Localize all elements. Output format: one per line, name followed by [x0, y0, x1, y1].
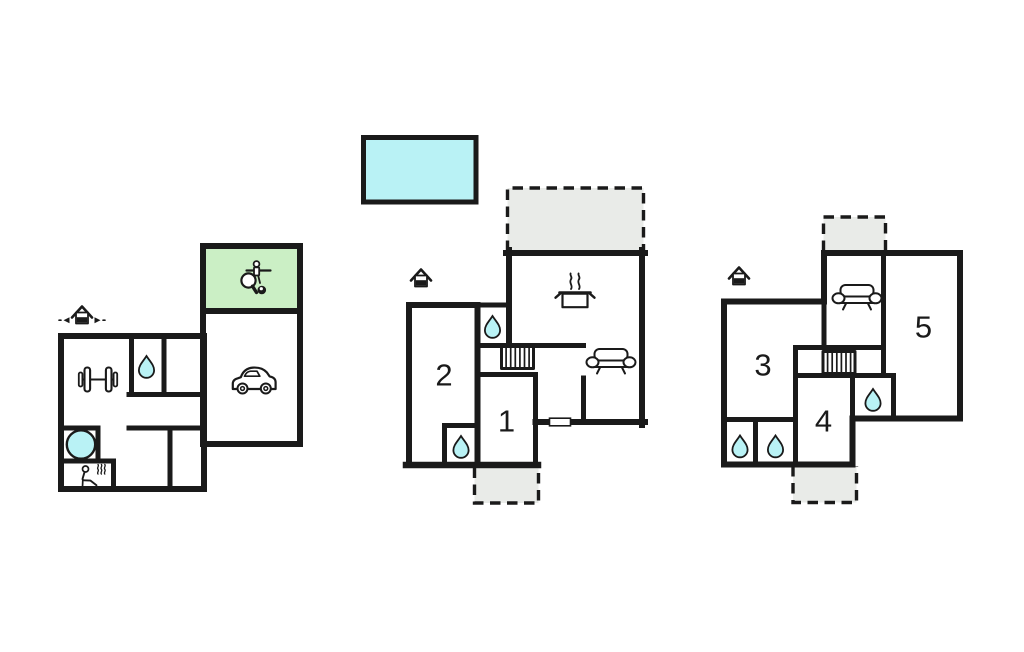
sofa-icon [833, 285, 882, 310]
water-drop-icon [485, 316, 500, 338]
water-drop-icon [453, 436, 468, 458]
water-drop-icon [139, 356, 154, 378]
stairs-icon [823, 352, 855, 374]
cooking-pot-icon [556, 273, 595, 307]
room-2-label: 2 [435, 358, 452, 393]
room-5-label: 5 [915, 310, 932, 345]
entrance-icon [59, 307, 105, 324]
stairs-icon [502, 347, 534, 369]
water-drop-icon [865, 389, 880, 411]
car-icon [233, 368, 276, 394]
water-drop-icon [732, 436, 747, 458]
room-1-label: 1 [498, 404, 515, 439]
swimming-pool [364, 138, 477, 203]
interior-walls-middle-plan [406, 346, 584, 466]
floor-plan-page: 2 1 3 4 5 [0, 0, 1024, 652]
terrace-bottom [793, 467, 857, 503]
water-drop-icon [768, 436, 783, 458]
terrace-bottom [475, 469, 539, 504]
middle-plan: 2 1 [406, 188, 645, 503]
living-room-walls [506, 250, 645, 425]
entrance-icon [729, 268, 749, 285]
whirlpool-tub-icon [67, 430, 95, 458]
sauna-person-icon [83, 465, 106, 487]
entrance-icon [411, 270, 431, 287]
interior-walls-left-plan [61, 336, 204, 489]
barbell-icon [79, 368, 117, 392]
terrace-top [508, 188, 644, 250]
left-plan [59, 246, 300, 489]
terrace-top [824, 217, 886, 250]
floor-plan-drawing: 2 1 3 4 5 [0, 0, 1024, 652]
window-opening [550, 418, 571, 426]
right-plan: 3 4 5 [724, 217, 960, 503]
room-3-label: 3 [754, 348, 771, 383]
sofa-icon [587, 349, 636, 374]
garage-room [203, 311, 300, 444]
room-4-label: 4 [815, 404, 832, 439]
